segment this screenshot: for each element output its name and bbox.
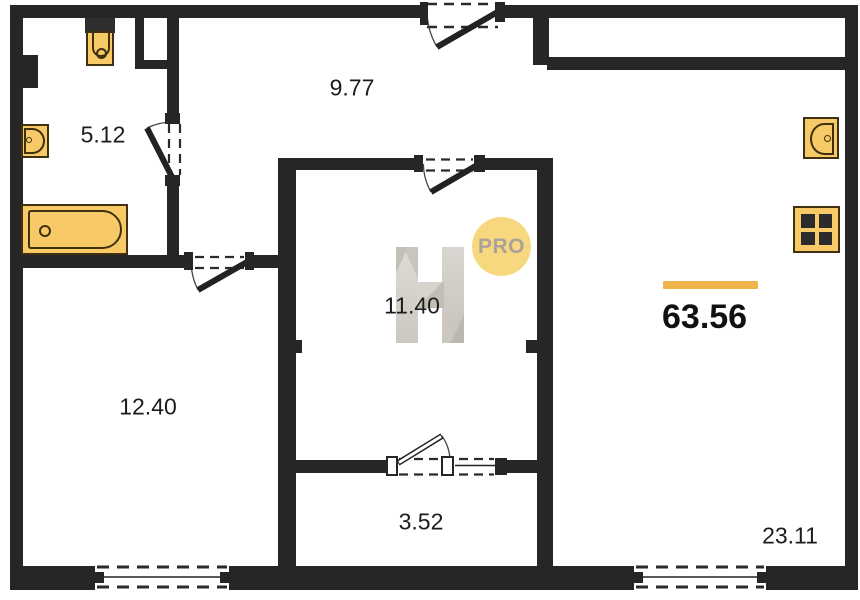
entrance-door-arc bbox=[427, 10, 437, 47]
h-watermark-bar bbox=[442, 247, 464, 343]
total-area: 63.56 bbox=[662, 298, 747, 337]
door-jamb bbox=[495, 2, 505, 22]
door-jamb bbox=[420, 2, 428, 25]
door-jamb bbox=[245, 252, 254, 270]
entrance-door-leaf bbox=[437, 10, 501, 47]
window-tick bbox=[634, 572, 643, 583]
room-label-bathroom: 5.12 bbox=[81, 122, 126, 149]
door-jamb bbox=[165, 175, 180, 186]
door-jamb bbox=[184, 252, 193, 270]
window-tick bbox=[95, 572, 104, 583]
toilet-icon bbox=[85, 18, 115, 66]
roomcenter-door-leaf bbox=[431, 164, 479, 192]
burner bbox=[819, 232, 833, 246]
window-tick bbox=[757, 572, 766, 583]
bathroom-door-leaf bbox=[147, 128, 172, 177]
door-jamb-white bbox=[441, 456, 454, 476]
door-jamb bbox=[474, 155, 485, 172]
room-label-room-left: 12.40 bbox=[119, 394, 177, 421]
wash-basin-icon bbox=[21, 124, 49, 158]
pro-badge: PRO bbox=[472, 217, 531, 276]
room-label-room-center: 11.40 bbox=[384, 293, 440, 320]
roomleft-door-leaf bbox=[198, 262, 247, 290]
floor-plan: H PRO 5.12 9.77 11.40 12.40 3.52 23.11 6… bbox=[0, 0, 860, 600]
burner bbox=[801, 214, 815, 228]
kitchen-sink-icon bbox=[803, 117, 839, 159]
room-label-wardrobe: 3.52 bbox=[399, 509, 444, 536]
door-jamb bbox=[165, 113, 180, 124]
window-tick bbox=[220, 572, 229, 583]
burner bbox=[801, 232, 815, 246]
door-jamb bbox=[414, 155, 423, 172]
accent-line bbox=[663, 281, 758, 289]
burner bbox=[819, 214, 833, 228]
door-jamb-white bbox=[386, 456, 398, 476]
room-label-living-kitchen: 23.11 bbox=[762, 523, 818, 550]
pro-badge-label: PRO bbox=[478, 235, 525, 259]
room-label-hallway: 9.77 bbox=[330, 75, 375, 102]
roomcenter-door-arc bbox=[423, 164, 431, 192]
stove-icon bbox=[793, 206, 840, 253]
bathtub-icon bbox=[21, 204, 128, 255]
